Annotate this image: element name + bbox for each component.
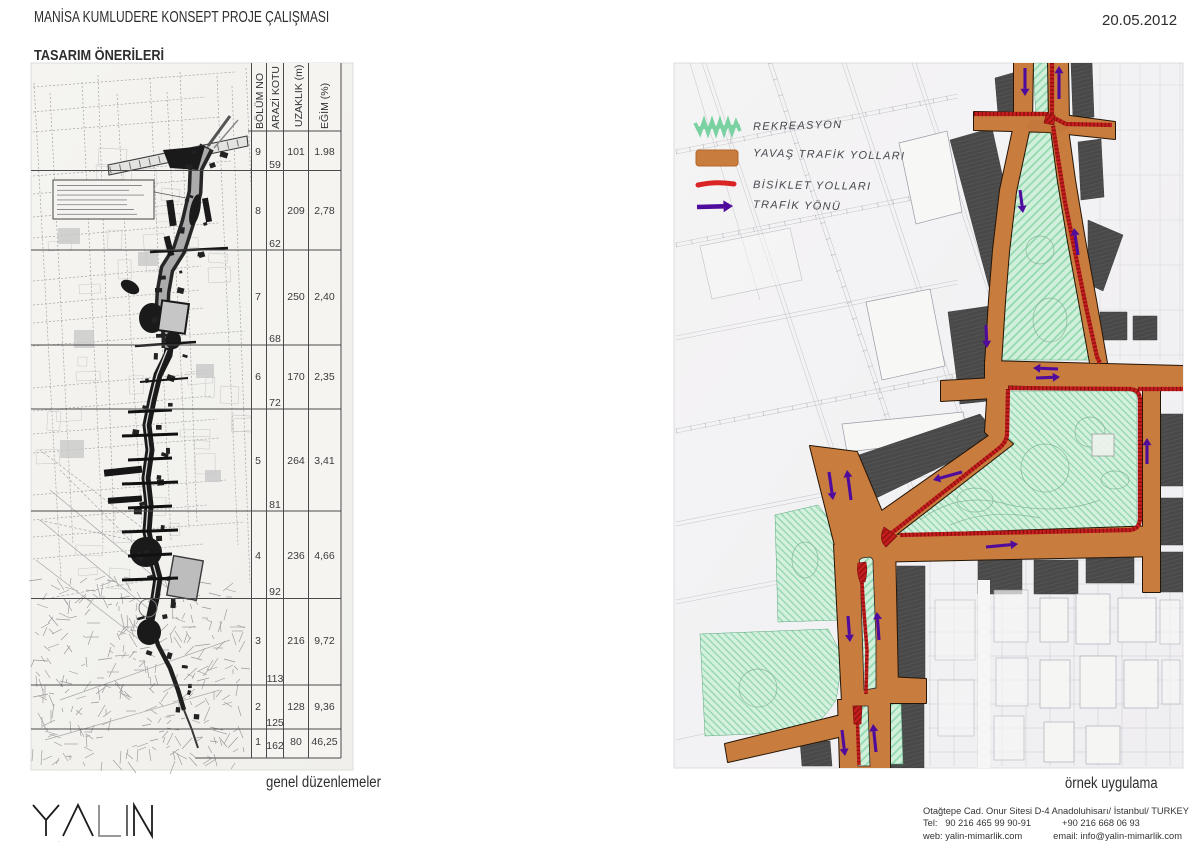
svg-text:128: 128 xyxy=(287,701,305,713)
svg-text:2,40: 2,40 xyxy=(314,291,335,303)
svg-text:59: 59 xyxy=(269,159,281,171)
svg-text:80: 80 xyxy=(290,736,302,748)
svg-text:5: 5 xyxy=(255,455,261,467)
svg-text:8: 8 xyxy=(255,205,261,217)
svg-text:1.98: 1.98 xyxy=(314,146,335,158)
svg-text:46,25: 46,25 xyxy=(311,736,337,748)
svg-text:EĞİM (%): EĞİM (%) xyxy=(318,83,331,129)
svg-text:216: 216 xyxy=(287,635,305,647)
svg-text:2,35: 2,35 xyxy=(314,371,335,383)
svg-text:62: 62 xyxy=(269,238,281,250)
svg-text:7: 7 xyxy=(255,291,261,303)
svg-text:81: 81 xyxy=(269,499,281,511)
svg-text:9: 9 xyxy=(255,146,261,158)
svg-text:6: 6 xyxy=(255,371,261,383)
svg-text:236: 236 xyxy=(287,550,305,562)
svg-text:264: 264 xyxy=(287,455,305,467)
svg-text:3: 3 xyxy=(255,635,261,647)
svg-text:2: 2 xyxy=(255,701,261,713)
svg-text:4,66: 4,66 xyxy=(314,550,335,562)
svg-text:9,36: 9,36 xyxy=(314,701,335,713)
svg-text:4: 4 xyxy=(255,550,261,562)
svg-text:125: 125 xyxy=(266,717,284,729)
svg-text:72: 72 xyxy=(269,397,281,409)
svg-text:250: 250 xyxy=(287,291,305,303)
svg-text:9,72: 9,72 xyxy=(314,635,335,647)
svg-text:3,41: 3,41 xyxy=(314,455,335,467)
svg-text:1: 1 xyxy=(255,736,261,748)
svg-text:68: 68 xyxy=(269,333,281,345)
svg-text:92: 92 xyxy=(269,586,281,598)
svg-text:162: 162 xyxy=(266,740,284,752)
svg-text:113: 113 xyxy=(267,673,284,685)
svg-text:UZAKLIK (m): UZAKLIK (m) xyxy=(293,65,305,127)
svg-text:101: 101 xyxy=(287,146,305,158)
svg-text:170: 170 xyxy=(287,371,305,383)
svg-text:209: 209 xyxy=(287,205,305,217)
svg-text:BÖLÜM NO: BÖLÜM NO xyxy=(254,73,266,129)
svg-text:ARAZİ KOTU: ARAZİ KOTU xyxy=(269,66,282,129)
svg-text:2,78: 2,78 xyxy=(314,205,335,217)
